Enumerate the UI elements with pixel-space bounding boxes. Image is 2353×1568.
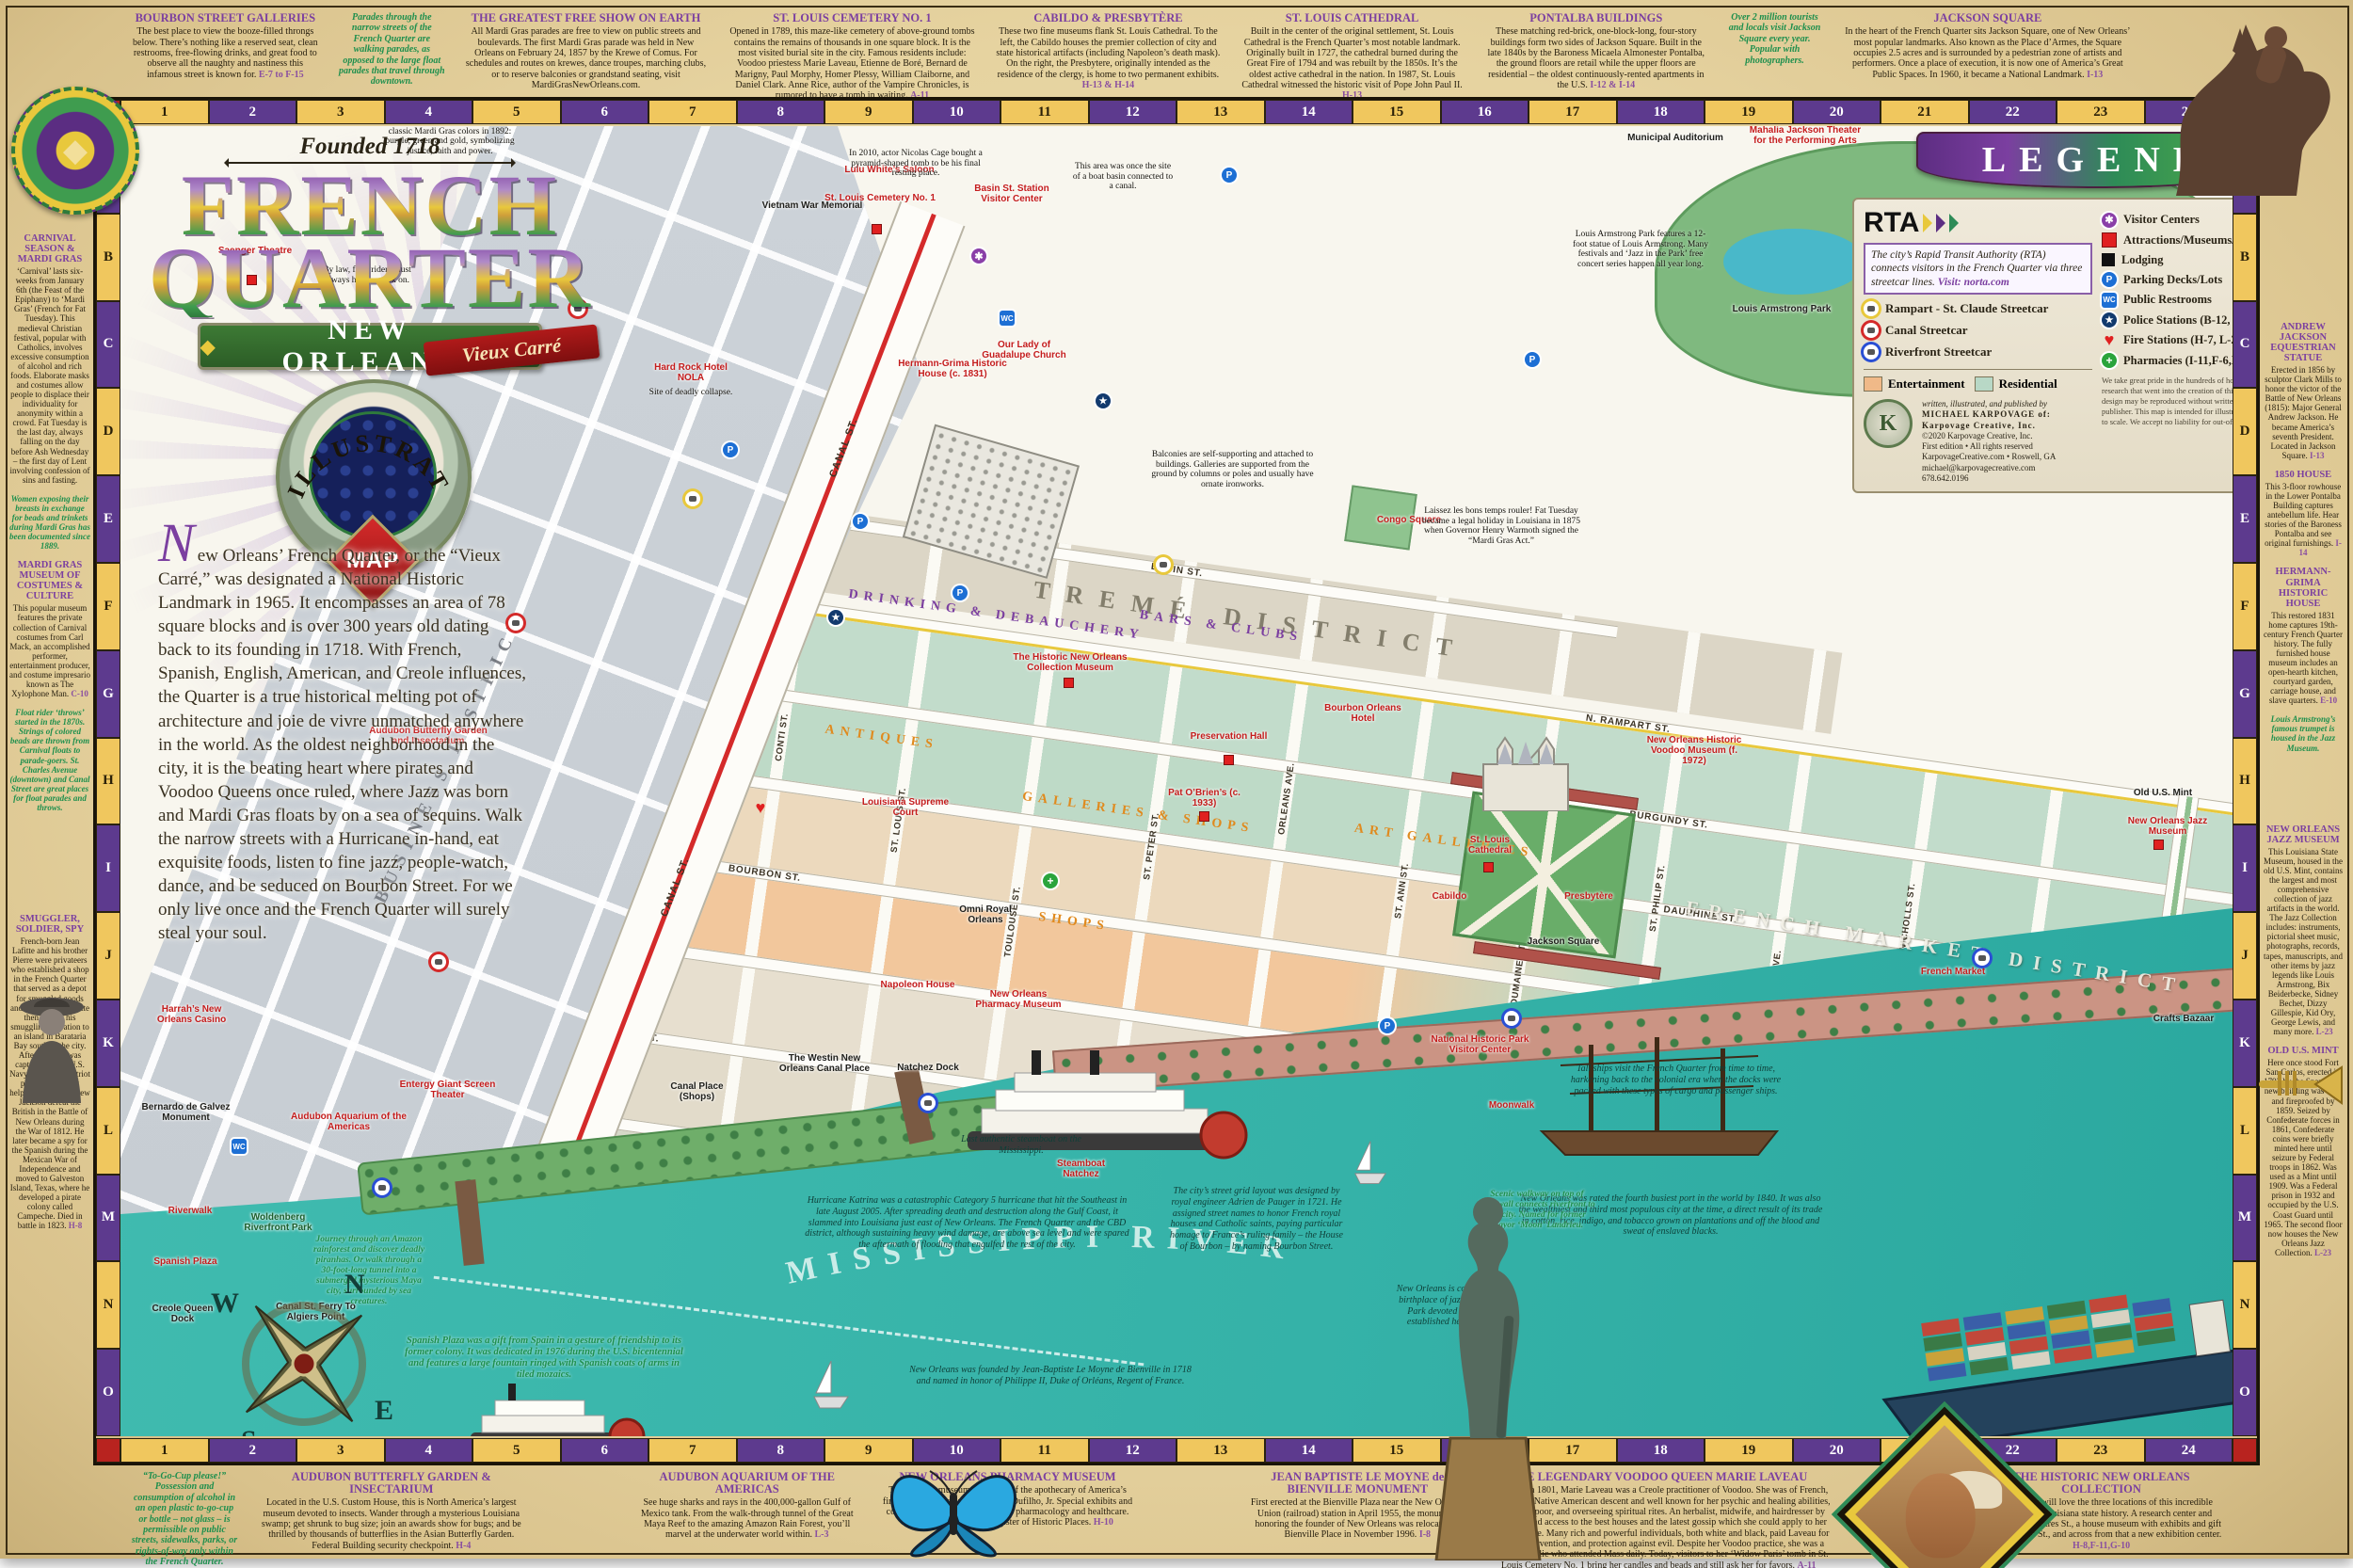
compass-west: W: [211, 1288, 239, 1320]
legend-pharmacies: + Pharmacies (I-11,F-6,D-5,H-19): [2102, 353, 2233, 368]
landmark-pharmacy-museum: New Orleans Pharmacy Museum: [971, 990, 1065, 1011]
landmark-jackson-square: Jackson Square: [1512, 937, 1615, 948]
sailboat-icon: [1353, 1141, 1387, 1186]
grid-number-cell: 18: [1617, 1438, 1705, 1463]
mardi-gras-medallion: ◆: [11, 87, 139, 215]
border-panel: MARDI GRAS MUSEUM OF COSTUMES & CULTURE …: [9, 560, 90, 698]
parking-icon: P: [2102, 272, 2117, 287]
jackson-square-block: [1452, 792, 1636, 959]
landmark-jazz-museum: New Orleans Jazz Museum: [2116, 817, 2219, 838]
grid-letter-cell: K: [96, 1000, 120, 1087]
andrew-jackson-horse-statue-image: [2138, 9, 2336, 198]
grid-number-cell: 24: [2145, 1438, 2233, 1463]
grid-letter-cell: N: [96, 1261, 120, 1349]
border-panel: HERMANN-GRIMA HISTORIC HOUSE This restor…: [2263, 567, 2344, 705]
grid-letter-cell: N: [2233, 1261, 2257, 1349]
landmark-preservation-hall: Preservation Hall: [1184, 732, 1273, 743]
landmark-spanish-plaza: Spanish Plaza: [152, 1257, 219, 1268]
landmark-steamboat-natchez: Steamboat Natchez: [1041, 1160, 1121, 1180]
grid-number-cell: 8: [737, 1438, 825, 1463]
pharmacy-icon: +: [1043, 873, 1058, 888]
trumpet-image: [2257, 1058, 2344, 1112]
residential-swatch: Residential: [1975, 376, 2057, 392]
attraction-marker: [2153, 840, 2164, 850]
river-note-spanish-plaza: Spanish Plaza was a gift from Spain in a…: [403, 1336, 685, 1381]
landmark-armstrong-park: Louis Armstrong Park: [1721, 305, 1843, 315]
landmark-louisiana-supreme-court: Louisiana Supreme Court: [858, 798, 952, 819]
pharmacy-icon: +: [2102, 353, 2117, 368]
grid-number-cell: 23: [2057, 1438, 2145, 1463]
riverfront-streetcar-icon: [1864, 344, 1879, 360]
grid-number-cell: 1: [120, 100, 209, 124]
intro-paragraph: New Orleans’ French Quarter, or the “Vie…: [158, 521, 527, 945]
rta-chevron: [1949, 214, 1959, 232]
compass-east: E: [375, 1395, 393, 1427]
grid-letter-cell: O: [96, 1349, 120, 1436]
grid-number-cell: 9: [824, 100, 913, 124]
restroom-icon: WC: [2102, 293, 2117, 308]
grid-number-cell: 16: [1441, 100, 1529, 124]
grid-letter-cell: G: [2233, 650, 2257, 738]
top-border-panels: BOURBON STREET GALLERIES The best place …: [120, 11, 2144, 98]
note-laissez: Laissez les bons temps rouler! Fat Tuesd…: [1412, 506, 1591, 547]
rta-logo: RTA: [1864, 207, 2092, 239]
attraction-icon: [2102, 232, 2117, 248]
french-quarter-map-page: BUSINESS DISTRICT BASIN ST. BASIN ST. N.…: [0, 0, 2353, 1568]
note-hard-rock: Site of deadly collapse.: [644, 388, 738, 398]
landmark-voodoo-museum: New Orleans Historic Voodoo Museum (f. 1…: [1642, 736, 1746, 766]
landmark-municipal-auditorium: Municipal Auditorium: [1624, 134, 1727, 144]
grid-number-cell: 15: [1353, 100, 1441, 124]
legend-restrooms: WC Public Restrooms: [2102, 293, 2233, 308]
landmark-westin: The Westin New Orleans Canal Place: [777, 1054, 872, 1075]
grid-number-cell: 13: [1176, 1438, 1265, 1463]
border-panel: 1850 HOUSE This 3-floor rowhouse in the …: [2263, 470, 2344, 558]
legend-riverfront-line: Riverfront Streetcar: [1864, 344, 2092, 360]
rta-chevron: [1923, 214, 1932, 232]
legend-rampart-line: Rampart - St. Claude Streetcar: [1864, 301, 2092, 316]
residential-color: [1975, 376, 1993, 392]
parking-icon: P: [853, 514, 868, 529]
border-panel: BOURBON STREET GALLERIES The best place …: [120, 11, 330, 81]
legend-fire: ♥ Fire Stations (H-7, L-24) 911: [2102, 333, 2233, 348]
landmark-creole-queen-dock: Creole Queen Dock: [149, 1304, 216, 1325]
grid-number-cell: 21: [1881, 100, 1969, 124]
grid-number-cell: 7: [648, 100, 737, 124]
grid-letter-cell: D: [2233, 388, 2257, 475]
attraction-marker: [1199, 811, 1209, 822]
landmark-omni-royal-orleans: Omni Royal Orleans: [943, 905, 1028, 926]
grid-number-cell: 12: [1089, 1438, 1177, 1463]
rampart-streetcar-icon: [1864, 301, 1879, 316]
grid-number-cell: 10: [913, 100, 1001, 124]
creole-queen-paddleboat-illustration: [459, 1378, 648, 1436]
grid-number-cell: 6: [561, 1438, 649, 1463]
grid-letter-cell: I: [96, 824, 120, 912]
ruler-corner-cap: [96, 1438, 120, 1463]
police-station-icon: ★: [828, 610, 843, 625]
bienville-statue-image: [1408, 1184, 1568, 1560]
border-panel: NEW ORLEANS JAZZ MUSEUM This Louisiana S…: [2263, 824, 2344, 1037]
grid-number-cell: 14: [1265, 1438, 1353, 1463]
border-panel: THE GREATEST FREE SHOW ON EARTH All Mard…: [454, 11, 718, 91]
visitor-center-icon: ✱: [971, 248, 986, 264]
left-border-panels: CARNIVAL SEASON & MARDI GRAS ‘Carnival’ …: [9, 233, 90, 1448]
grid-number-cell: 2: [209, 100, 297, 124]
grid-letter-cell: J: [96, 912, 120, 1000]
grid-ruler-left: ABCDEFGHIJKLMNO: [96, 126, 120, 1436]
river-note-tall-ships: Tall ships visit the French Quarter from…: [1561, 1064, 1791, 1096]
parking-icon: P: [723, 442, 738, 457]
grid-number-cell: 4: [385, 100, 473, 124]
grid-letter-cell: C: [96, 301, 120, 389]
grid-letter-cell: E: [96, 475, 120, 563]
legend-police: ★ Police Stations (B-12, F-8) 911: [2102, 312, 2233, 328]
police-station-icon: ★: [1096, 393, 1111, 408]
entertainment-color: [1864, 376, 1882, 392]
grid-number-cell: 17: [1529, 100, 1617, 124]
grid-letter-cell: K: [2233, 1000, 2257, 1087]
grid-number-cell: 3: [296, 100, 385, 124]
landmark-french-market: French Market: [1911, 968, 1995, 978]
rta-description: The city’s Rapid Transit Authority (RTA)…: [1864, 243, 2092, 295]
grid-number-cell: 8: [737, 100, 825, 124]
restroom-icon: WC: [232, 1139, 247, 1154]
founded-label: Founded 1718: [149, 134, 591, 160]
attraction-marker: [1224, 755, 1234, 765]
butterfly-image: [883, 1457, 1024, 1560]
canal-streetcar-stop-icon: [431, 954, 446, 969]
landmark-hermann-grima: Hermann-Grima Historic House (c. 1831): [896, 360, 1009, 380]
park-lagoon: [1723, 229, 1865, 295]
compass-south: S: [241, 1425, 257, 1436]
landmark-moonwalk: Moonwalk: [1478, 1101, 1545, 1112]
restroom-icon: WC: [1000, 311, 1015, 326]
border-panel: ANDREW JACKSON EQUESTRIAN STATUE Erected…: [2263, 322, 2344, 460]
landmark-bourbon-orleans: Bourbon Orleans Hotel: [1316, 704, 1410, 725]
river-note-founded: New Orleans was founded by Jean-Baptiste…: [909, 1365, 1192, 1387]
landmark-nhp-visitor-center: National Historic Park Visitor Center: [1431, 1035, 1529, 1056]
landmark-canal-place: Canal Place (Shops): [652, 1082, 742, 1103]
legend-canal-line: Canal Streetcar: [1864, 323, 2092, 338]
grid-letter-cell: H: [96, 738, 120, 825]
legend-visitor-centers: ✱ Visitor Centers: [2102, 213, 2233, 228]
river-note-katrina: Hurricane Katrina was a catastrophic Cat…: [805, 1195, 1129, 1251]
title-quarter: QUARTER: [149, 238, 591, 318]
border-panel: CARNIVAL SEASON & MARDI GRAS ‘Carnival’ …: [9, 233, 90, 485]
fire-station-icon: ♥: [2102, 333, 2117, 348]
grid-number-cell: 18: [1617, 100, 1705, 124]
riverfront-streetcar-stop-icon: [1504, 1011, 1519, 1026]
landmark-woldenberg-park: Woldenberg Riverfront Park: [238, 1213, 318, 1234]
note-boat-basin: This area was once the site of a boat ba…: [1071, 162, 1175, 192]
grid-number-cell: 11: [1000, 100, 1089, 124]
grid-number-cell: 5: [472, 100, 561, 124]
grid-number-cell: 1: [120, 1438, 209, 1463]
grid-number-cell: 5: [472, 1438, 561, 1463]
riverfront-streetcar-stop-icon: [1975, 951, 1990, 966]
grid-letter-cell: L: [2233, 1087, 2257, 1175]
landmark-crafts-bazaar: Crafts Bazaar: [2146, 1015, 2221, 1025]
grid-letter-cell: C: [2233, 301, 2257, 389]
landmark-natchez-dock: Natchez Dock: [894, 1064, 962, 1074]
landmark-mahalia-jackson-theater: Mahalia Jackson Theater for the Performi…: [1749, 126, 1862, 147]
legend-attractions: Attractions/Museums/Bars: [2102, 232, 2233, 248]
fleur-ornament: ◆: [63, 132, 88, 169]
border-panel: Over 2 million tourists and locals visit…: [1718, 11, 1831, 67]
visitor-center-icon: ✱: [2102, 213, 2117, 228]
border-panel: JACKSON SQUARE In the heart of the Frenc…: [1832, 11, 2144, 81]
legend-parking: P Parking Decks/Lots: [2102, 272, 2233, 287]
attraction-marker: [1064, 678, 1074, 688]
border-panel: PONTALBA BUILDINGS These matching red-br…: [1474, 11, 1718, 91]
grid-letter-cell: F: [2233, 563, 2257, 650]
landmark-thnoc-museum: The Historic New Orleans Collection Muse…: [1000, 653, 1141, 674]
entertainment-swatch: Entertainment: [1864, 376, 1965, 392]
grid-number-cell: 3: [296, 1438, 385, 1463]
legend-left-column: RTA The city’s Rapid Transit Authority (…: [1864, 207, 2092, 484]
river-note-grid-design: The city’s street grid layout was design…: [1167, 1186, 1346, 1253]
border-panel: ST. LOUIS CATHEDRAL Built in the center …: [1230, 11, 1474, 103]
grid-letter-cell: J: [2233, 912, 2257, 1000]
rampart-streetcar-stop-icon: [1156, 557, 1171, 572]
grid-letter-cell: H: [2233, 738, 2257, 825]
legend-body: RTA The city’s Rapid Transit Authority (…: [1852, 198, 2233, 493]
st-louis-cathedral-building: [1474, 736, 1577, 811]
grid-number-cell: 4: [385, 1438, 473, 1463]
landmark-harrahs-casino: Harrah’s New Orleans Casino: [147, 1005, 236, 1026]
grid-number-cell: 20: [1793, 100, 1881, 124]
diamond-ornament: ◆: [200, 335, 220, 359]
grid-number-cell: 19: [1705, 1438, 1793, 1463]
landmark-st-louis-cemetery: St. Louis Cemetery No. 1: [809, 194, 951, 204]
canal-streetcar-icon: [1864, 323, 1879, 338]
grid-letter-cell: F: [96, 563, 120, 650]
landmark-cabildo: Cabildo: [1417, 892, 1482, 903]
jean-lafitte-image: [15, 990, 88, 1103]
landmark-presbytere: Presbytère: [1551, 892, 1626, 903]
landmark-old-us-mint: Old U.S. Mint: [2116, 789, 2210, 799]
grid-letter-cell: G: [96, 650, 120, 738]
lodging-icon: [2102, 253, 2115, 266]
svg-text:ILLUSTRATED: ILLUSTRATED: [276, 379, 456, 502]
grid-number-cell: 7: [648, 1438, 737, 1463]
legend-right-column: ✱ Visitor Centers Attractions/Museums/Ba…: [2102, 207, 2233, 484]
parking-icon: P: [1222, 168, 1237, 183]
grid-letter-cell: B: [96, 214, 120, 301]
grid-letter-cell: O: [2233, 1349, 2257, 1436]
grid-letter-cell: B: [2233, 214, 2257, 301]
border-panel: “To-Go-Cup please!” Possession and consu…: [122, 1470, 247, 1568]
border-panel: ST. LOUIS CEMETERY NO. 1 Opened in 1789,…: [718, 11, 986, 103]
grid-number-cell: 20: [1793, 1438, 1881, 1463]
grid-number-cell: 14: [1265, 100, 1353, 124]
grid-letter-cell: L: [96, 1087, 120, 1175]
landmark-riverwalk: Riverwalk: [156, 1207, 224, 1217]
ruler-corner-cap: [2233, 1438, 2257, 1463]
parking-icon: P: [952, 585, 968, 600]
grid-letter-cell: I: [2233, 824, 2257, 912]
rta-chevron: [1936, 214, 1945, 232]
attraction-marker: [872, 224, 882, 234]
riverfront-streetcar-stop-icon: [920, 1096, 936, 1111]
note-balconies: Balconies are self-supporting and attach…: [1150, 450, 1315, 490]
grid-ruler-right: ABCDEFGHIJKLMNO: [2233, 126, 2257, 1436]
border-panel: CABILDO & PRESBYTÈRE These two fine muse…: [986, 11, 1230, 91]
tall-ship-illustration: [1523, 1037, 1796, 1160]
grid-ruler-top: 123456789101112131415161718192021222324: [120, 100, 2233, 124]
attraction-marker: [1483, 862, 1494, 872]
sailboat-icon: [812, 1361, 850, 1410]
grid-number-cell: 6: [561, 100, 649, 124]
border-panel: Parades through the narrow streets of th…: [330, 11, 454, 88]
landmark-galvez-monument: Bernardo de Galvez Monument: [141, 1103, 231, 1124]
rampart-streetcar-stop-icon: [685, 491, 700, 506]
grid-number-cell: 22: [1969, 100, 2057, 124]
border-panel: Women exposing their breasts in exchange…: [9, 494, 90, 551]
border-panel: Float rider ‘throws’ started in the 1870…: [9, 708, 90, 812]
legend-zone-swatches: Entertainment Residential: [1864, 369, 2092, 392]
grid-number-cell: 2: [209, 1438, 297, 1463]
border-panel: Louis Armstrong’s famous trumpet is hous…: [2263, 714, 2344, 752]
right-border-panels: ANDREW JACKSON EQUESTRIAN STATUE Erected…: [2263, 230, 2344, 1463]
karpovage-logo: K: [1864, 399, 1913, 448]
landmark-basin-st-station: Basin St. Station Visitor Center: [960, 184, 1064, 205]
parking-icon: P: [1525, 352, 1540, 367]
compass-north: N: [344, 1269, 365, 1301]
police-station-icon: ★: [2102, 312, 2117, 328]
grid-letter-cell: D: [96, 388, 120, 475]
compass-rose: N E S W: [224, 1284, 384, 1436]
landmark-aquarium: Audubon Aquarium of the Americas: [290, 1112, 408, 1133]
publisher-block: written, illustrated, and published by M…: [1922, 399, 2092, 484]
landmark-hard-rock: Hard Rock Hotel NOLA: [644, 363, 738, 384]
grid-letter-cell: M: [2233, 1175, 2257, 1262]
legend-disclaimer: We take great pride in the hundreds of h…: [2102, 376, 2233, 427]
grid-number-cell: 13: [1176, 100, 1265, 124]
landmark-pat-obriens: Pat O’Brien’s (c. 1933): [1160, 789, 1249, 809]
landmark-napoleon-house: Napoleon House: [880, 981, 955, 991]
landmark-giant-screen-theater: Entergy Giant Screen Theater: [398, 1080, 497, 1101]
grid-number-cell: 23: [2057, 100, 2145, 124]
note-armstrong-park: Louis Armstrong Park features a 12-foot …: [1570, 230, 1711, 270]
fire-station-icon: ♥: [753, 800, 768, 815]
legend-lodging: Lodging: [2102, 253, 2233, 267]
parking-icon: P: [1380, 1018, 1395, 1033]
grid-number-cell: 19: [1705, 100, 1793, 124]
border-panel: AUDUBON BUTTERFLY GARDEN & INSECTARIUM L…: [247, 1470, 536, 1552]
border-panel: AUDUBON AQUARIUM OF THE AMERICAS See hug…: [623, 1470, 872, 1542]
note-nicolas-cage: In 2010, actor Nicolas Cage bought a pyr…: [845, 149, 986, 179]
grid-letter-cell: M: [96, 1175, 120, 1262]
landmark-st-louis-cathedral: St. Louis Cathedral: [1448, 836, 1532, 856]
note-last-authentic: Last authentic steamboat on the Mississi…: [951, 1134, 1092, 1157]
grid-letter-cell: E: [2233, 475, 2257, 563]
grid-number-cell: 12: [1089, 100, 1177, 124]
riverfront-streetcar-stop-icon: [375, 1180, 390, 1195]
map-area: BUSINESS DISTRICT BASIN ST. BASIN ST. N.…: [120, 126, 2233, 1436]
